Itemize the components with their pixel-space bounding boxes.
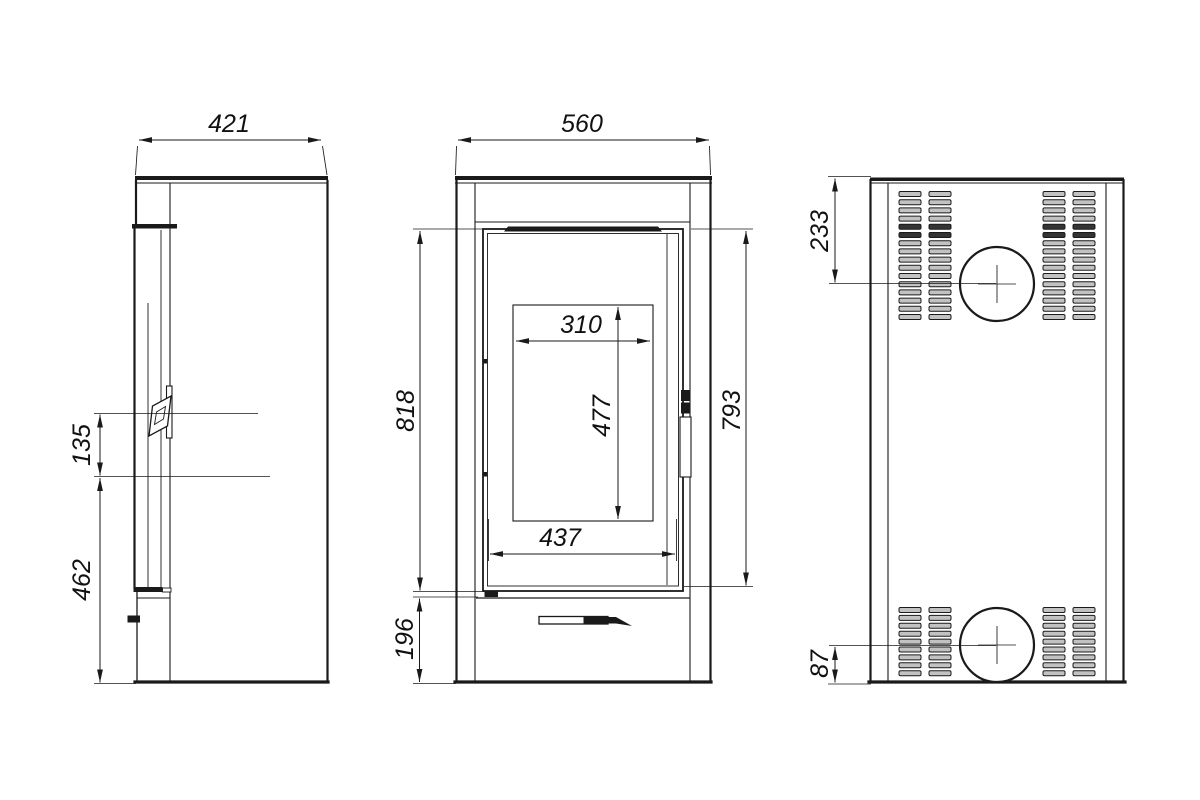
vent-slat xyxy=(899,282,921,287)
vent-slat xyxy=(1043,265,1065,270)
dim-437-label: 437 xyxy=(539,524,582,552)
vent-slat xyxy=(1073,623,1095,628)
vent-slat xyxy=(1043,216,1065,221)
vent-slat xyxy=(1043,282,1065,287)
back-top-plate xyxy=(870,178,1124,182)
vent-slat xyxy=(1043,241,1065,246)
vent-slat xyxy=(1043,200,1065,205)
vent-slat xyxy=(1073,647,1095,652)
vent-slat xyxy=(899,233,921,238)
front-top-plate xyxy=(455,176,712,180)
vent-slat xyxy=(899,663,921,668)
front-view: 560 818 196 793 310 477 437 xyxy=(391,110,753,684)
side-base-knob xyxy=(128,616,141,623)
front-door-edge-tick-upper xyxy=(484,359,488,364)
dim-560-ext-left xyxy=(456,146,457,175)
vent-slat xyxy=(1073,257,1095,262)
vent-slat xyxy=(899,290,921,295)
vent-slat xyxy=(899,265,921,270)
vent-slat xyxy=(1073,298,1095,303)
vent-slat xyxy=(899,200,921,205)
technical-drawing-page: 421 135 462 xyxy=(0,0,1200,800)
front-base-handle-tip xyxy=(616,617,632,626)
vent-slat xyxy=(1043,224,1065,229)
vent-slat xyxy=(1073,615,1095,620)
vent-slat xyxy=(1043,298,1065,303)
vent-slat xyxy=(1043,623,1065,628)
vent-slat xyxy=(1073,671,1095,676)
vent-slat xyxy=(1043,233,1065,238)
vent-slat xyxy=(1043,315,1065,320)
vent-slat xyxy=(1073,249,1095,254)
dim-818-label: 818 xyxy=(392,390,420,432)
vent-slat xyxy=(1043,274,1065,279)
vent-slat xyxy=(1073,233,1095,238)
side-top-step xyxy=(132,224,177,229)
front-door-latch-plate xyxy=(680,417,691,477)
vent-slat xyxy=(929,655,951,660)
vent-slat xyxy=(1043,663,1065,668)
vent-slat xyxy=(929,192,951,197)
vent-slat xyxy=(1043,608,1065,613)
vent-slat xyxy=(929,208,951,213)
front-door-bottom-hinge-block xyxy=(485,591,499,598)
dim-135-label: 135 xyxy=(68,424,96,466)
vent-slat xyxy=(899,224,921,229)
vent-slat xyxy=(899,623,921,628)
vent-slat xyxy=(1073,655,1095,660)
vent-slat xyxy=(1043,671,1065,676)
vent-slat xyxy=(1073,224,1095,229)
vent-slat xyxy=(929,671,951,676)
vent-slat xyxy=(1043,655,1065,660)
vent-slat xyxy=(899,192,921,197)
dim-560-label: 560 xyxy=(561,110,603,138)
vent-slat xyxy=(1073,315,1095,320)
vent-slat xyxy=(899,608,921,613)
dim-310-label: 310 xyxy=(560,311,602,339)
vent-slat xyxy=(899,241,921,246)
back-view: 233 87 xyxy=(806,177,1125,685)
stove-dimension-drawing: 421 135 462 xyxy=(0,0,1200,800)
dim-421-ext-left xyxy=(136,146,138,175)
vent-slat xyxy=(929,623,951,628)
vent-slat xyxy=(1073,631,1095,636)
vent-slat xyxy=(899,216,921,221)
vent-slat xyxy=(1073,290,1095,295)
vent-slat xyxy=(899,671,921,676)
vent-slat xyxy=(929,290,951,295)
vent-slat xyxy=(1043,647,1065,652)
vent-slat xyxy=(899,615,921,620)
vent-slat xyxy=(1073,306,1095,311)
dim-421-label: 421 xyxy=(208,110,250,138)
side-top-plate xyxy=(135,176,328,180)
vent-slat xyxy=(1073,282,1095,287)
vent-slat xyxy=(929,274,951,279)
vent-slat xyxy=(1073,663,1095,668)
vent-slat xyxy=(899,257,921,262)
vent-slat xyxy=(929,306,951,311)
dim-233-label: 233 xyxy=(806,210,834,253)
vent-slat xyxy=(929,298,951,303)
vent-slat xyxy=(1043,249,1065,254)
vent-slat xyxy=(929,282,951,287)
dim-477-label: 477 xyxy=(588,394,616,437)
side-door-bottom-bar xyxy=(134,587,163,592)
vent-slat xyxy=(1043,290,1065,295)
vent-slat xyxy=(899,315,921,320)
vent-slat xyxy=(929,216,951,221)
vent-slat xyxy=(1073,200,1095,205)
vent-slat xyxy=(929,631,951,636)
vent-slat xyxy=(899,631,921,636)
vent-slat xyxy=(929,241,951,246)
vent-slat xyxy=(929,315,951,320)
vent-slat xyxy=(1073,241,1095,246)
vent-slat xyxy=(929,647,951,652)
vent-slat xyxy=(1073,639,1095,644)
vent-slat xyxy=(899,208,921,213)
side-door-bottom-box xyxy=(163,588,172,592)
vent-slat xyxy=(1073,216,1095,221)
vent-slat xyxy=(1073,265,1095,270)
vent-slat xyxy=(929,200,951,205)
vent-slat xyxy=(929,639,951,644)
vent-slat xyxy=(1073,208,1095,213)
front-door-top-vent-slot xyxy=(504,227,662,232)
vent-slat xyxy=(1043,306,1065,311)
vent-slat xyxy=(899,639,921,644)
vent-slat xyxy=(1043,192,1065,197)
side-view: 421 135 462 xyxy=(68,110,328,684)
vent-slat xyxy=(929,249,951,254)
vent-slat xyxy=(929,257,951,262)
dim-462-label: 462 xyxy=(68,559,96,601)
dim-793-label: 793 xyxy=(718,390,746,432)
vent-slat xyxy=(899,655,921,660)
vent-slat xyxy=(1043,257,1065,262)
vent-slat xyxy=(929,663,951,668)
vent-slat xyxy=(899,298,921,303)
vent-slat xyxy=(929,233,951,238)
vent-slat xyxy=(899,647,921,652)
vent-slat xyxy=(1073,192,1095,197)
front-base-handle-grip xyxy=(584,617,617,624)
front-door-hinge-upper xyxy=(681,390,690,401)
dim-196-label: 196 xyxy=(391,618,419,660)
vent-slat xyxy=(899,306,921,311)
vent-slat xyxy=(1073,274,1095,279)
dim-87-label: 87 xyxy=(806,649,834,678)
vent-slat xyxy=(1043,639,1065,644)
vent-slat xyxy=(929,265,951,270)
vent-slat xyxy=(899,274,921,279)
dim-560-ext-right xyxy=(710,146,711,175)
vent-slat xyxy=(1043,615,1065,620)
vent-slat xyxy=(1073,608,1095,613)
vent-slat xyxy=(1043,208,1065,213)
vent-slat xyxy=(899,249,921,254)
vent-slat xyxy=(929,224,951,229)
vent-slat xyxy=(929,608,951,613)
vent-slat xyxy=(929,615,951,620)
front-door-edge-tick-lower xyxy=(484,472,488,477)
vent-slat xyxy=(1043,631,1065,636)
front-door-hinge-lower xyxy=(681,403,690,414)
dim-421-ext-right xyxy=(323,146,328,175)
